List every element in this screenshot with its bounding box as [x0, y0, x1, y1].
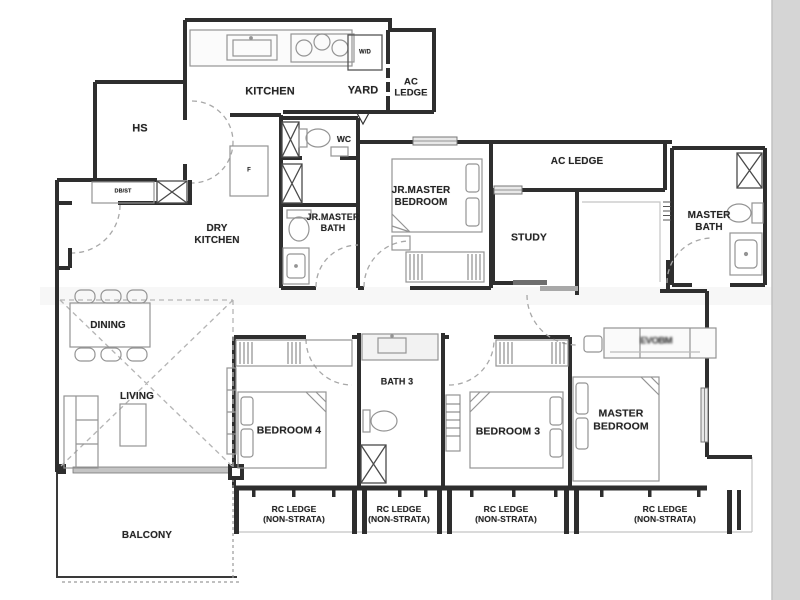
- rc-ledge-structure: [234, 490, 741, 534]
- scan-edge-band: [772, 0, 800, 600]
- balcony-parapet-dashes: [62, 479, 240, 582]
- balcony-walls: [57, 472, 237, 577]
- floorplan-drawing: [0, 0, 800, 600]
- vent-hatch: [663, 202, 671, 220]
- wall-junction-inner: [232, 468, 240, 476]
- floorplan-page: HSKITCHENYARDAC LEDGEW/DWCDB/STFDRY KITC…: [0, 0, 800, 600]
